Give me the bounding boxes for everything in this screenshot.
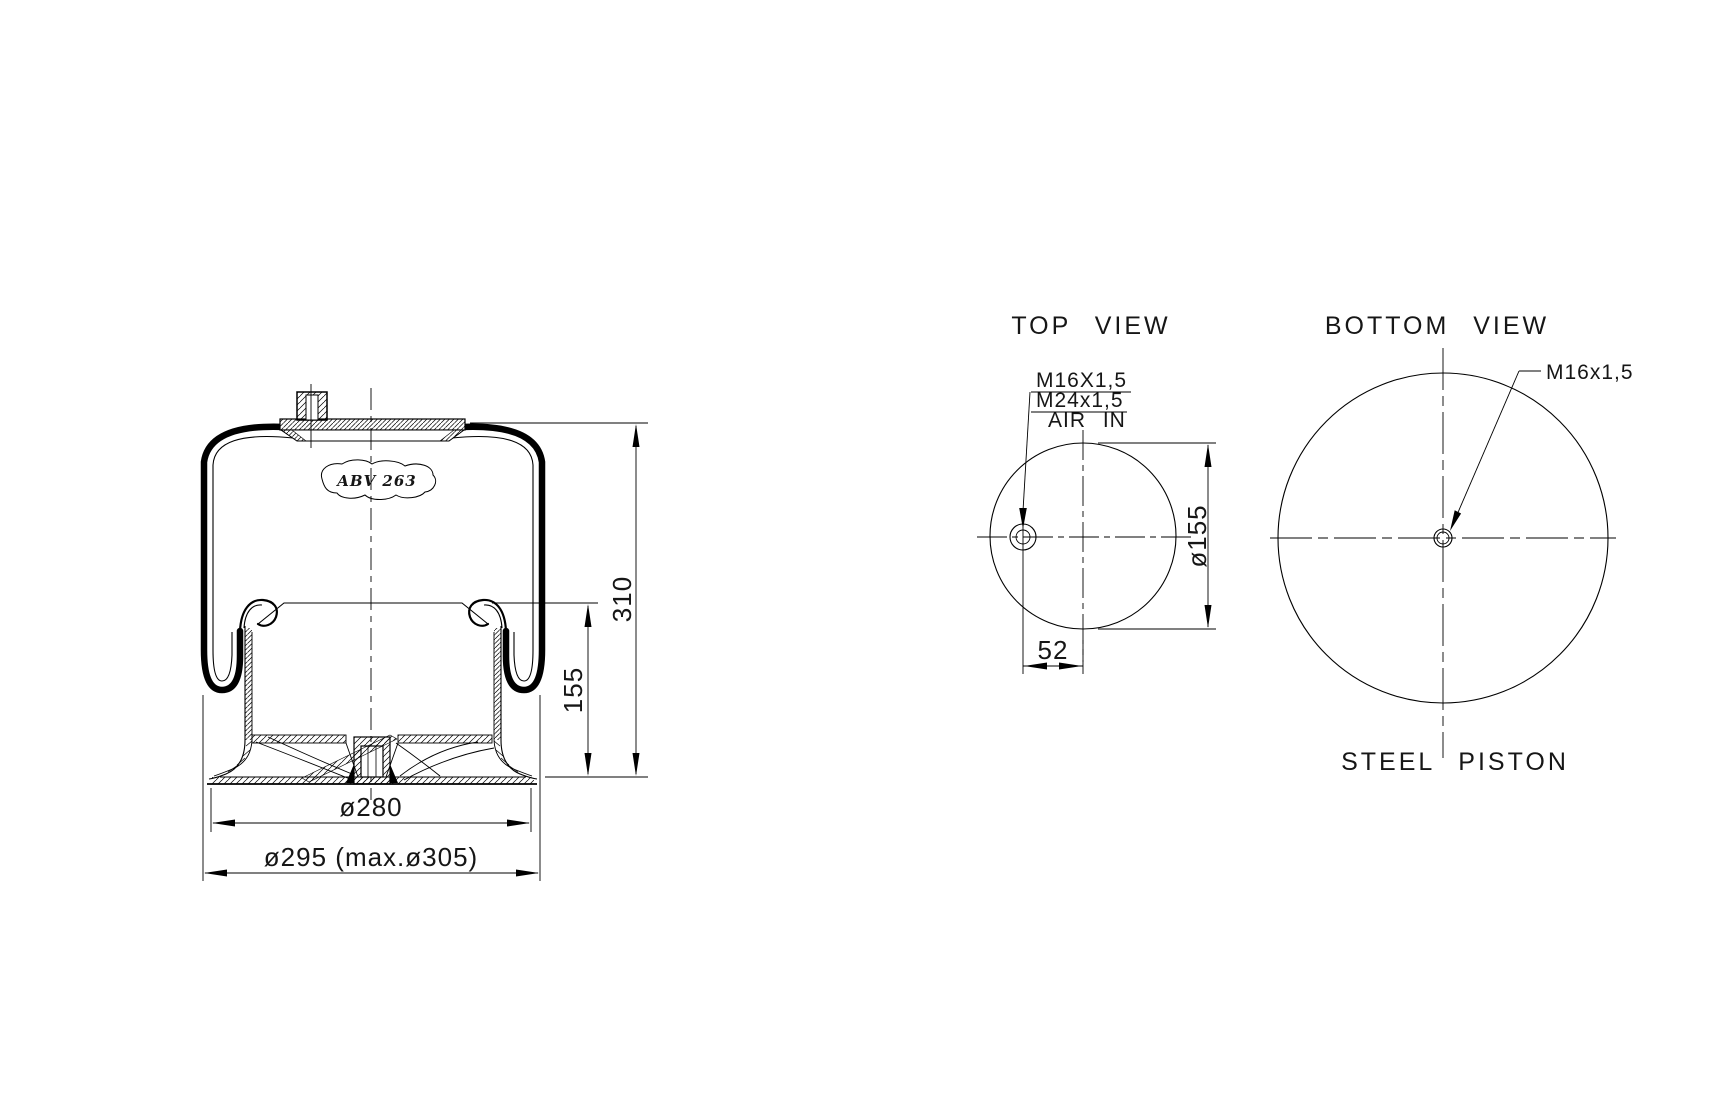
air-port-leader xyxy=(1023,392,1030,511)
dim-280-text: ø280 xyxy=(339,792,402,822)
dim-dia155-arrow-down xyxy=(1205,605,1212,628)
dim-280-arrow-left xyxy=(212,820,235,827)
part-label-blob: ABV 263 xyxy=(321,460,435,500)
dim-295-arrow-right xyxy=(516,870,539,877)
piston-top-surface xyxy=(258,603,488,624)
stud-bore xyxy=(306,395,318,420)
air-in-label: AIR IN xyxy=(1048,409,1126,432)
technical-drawing-page: ABV 263 xyxy=(0,0,1723,1115)
dim-295: ø295 (max.ø305) xyxy=(203,695,540,881)
bellows-right-inner-line xyxy=(452,437,533,681)
boss-fillet-right xyxy=(390,764,398,783)
dim-295-arrow-left xyxy=(204,870,227,877)
thread-leader-arrow xyxy=(1450,510,1461,531)
skirt-wall-right-hatch xyxy=(494,628,501,740)
thread-labels: M16X1,5 M24x1,5 AIR IN xyxy=(1019,369,1131,529)
dim-310-text: 310 xyxy=(607,576,637,622)
dim-dia155: ø155 xyxy=(1098,443,1216,629)
top-view-title: TOP VIEW xyxy=(1011,312,1170,340)
dim-310-arrow-up xyxy=(633,424,640,447)
dim-52-text: 52 xyxy=(1038,635,1069,665)
dim-dia155-text: ø155 xyxy=(1182,504,1212,567)
top-view: TOP VIEW M16X1,5 M24x1,5 AIR IN 52 xyxy=(977,312,1216,674)
bottom-thread-text: M16x1,5 xyxy=(1546,361,1634,384)
bottom-view-title: BOTTOM VIEW xyxy=(1325,312,1549,340)
floor-strip-left xyxy=(252,735,346,743)
dim-295-text: ø295 (max.ø305) xyxy=(264,842,478,872)
top-bead-plate xyxy=(280,419,465,441)
dim-155-text: 155 xyxy=(558,667,588,713)
flare-right-outer xyxy=(501,740,537,779)
plate-lip xyxy=(281,430,464,441)
air-spring-drawing: ABV 263 xyxy=(0,0,1723,1115)
dim-155-arrow-down xyxy=(585,753,592,776)
bottom-view: BOTTOM VIEW M16x1,5 STEEL PISTON xyxy=(1270,312,1634,776)
part-label-text: ABV 263 xyxy=(335,472,417,490)
flare-left-outer xyxy=(209,740,245,779)
dim-155-arrow-up xyxy=(585,604,592,627)
dim-280-arrow-right xyxy=(507,820,530,827)
bellows-left-inner-line xyxy=(213,437,293,681)
dim-310-arrow-down xyxy=(633,753,640,776)
dim-dia155-arrow-up xyxy=(1205,444,1212,467)
thread-leader xyxy=(1453,371,1519,524)
dim-280: ø280 xyxy=(211,788,531,832)
side-view: ABV 263 xyxy=(203,384,648,881)
skirt-wall-left-hatch xyxy=(245,628,252,740)
piston xyxy=(207,600,537,784)
bottom-thread-label: M16x1,5 xyxy=(1450,361,1634,531)
steel-piston-caption: STEEL PISTON xyxy=(1341,748,1569,776)
